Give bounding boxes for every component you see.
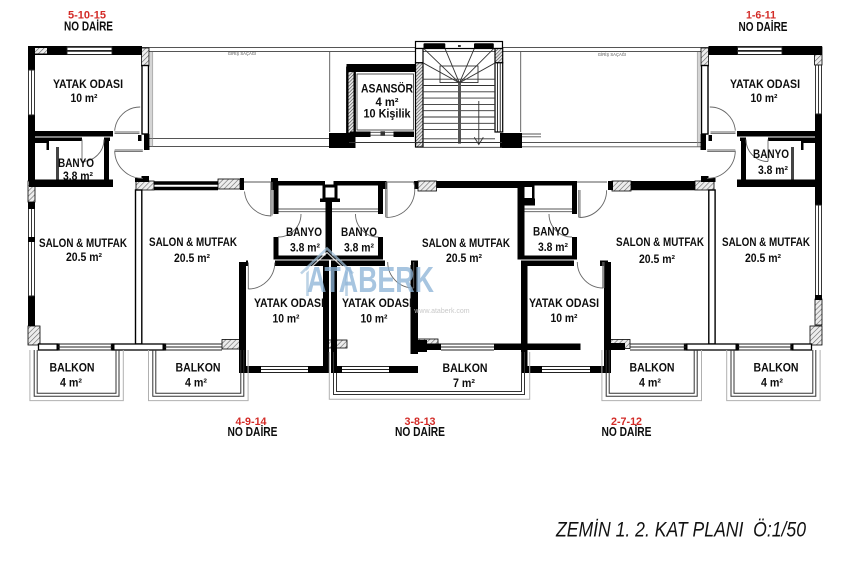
svg-text:20.5 m²: 20.5 m²	[639, 254, 675, 266]
svg-text:NO DAİRE: NO DAİRE	[395, 424, 445, 439]
svg-text:SALON & MUTFAK: SALON & MUTFAK	[422, 236, 510, 250]
svg-text:YATAK ODASI: YATAK ODASI	[529, 296, 599, 310]
svg-text:10 m²: 10 m²	[361, 314, 388, 326]
svg-text:20.5 m²: 20.5 m²	[174, 253, 210, 265]
svg-text:4 m²: 4 m²	[761, 378, 783, 390]
svg-text:YATAK ODASI: YATAK ODASI	[342, 296, 412, 310]
svg-text:3.8 m²: 3.8 m²	[63, 171, 93, 183]
svg-text:3.8 m²: 3.8 m²	[290, 243, 320, 255]
svg-text:10 m²: 10 m²	[273, 314, 300, 326]
svg-text:3.8 m²: 3.8 m²	[538, 242, 568, 254]
svg-text:4 m²: 4 m²	[60, 378, 82, 390]
svg-text:SALON & MUTFAK: SALON & MUTFAK	[149, 235, 237, 249]
svg-text:BANYO: BANYO	[286, 225, 322, 239]
svg-text:YATAK ODASI: YATAK ODASI	[254, 296, 324, 310]
svg-text:4 m²: 4 m²	[639, 378, 661, 390]
svg-text:SALON & MUTFAK: SALON & MUTFAK	[616, 235, 704, 249]
svg-text:10 m²: 10 m²	[71, 93, 98, 105]
svg-text:BALKON: BALKON	[630, 361, 675, 375]
svg-text:SALON & MUTFAK: SALON & MUTFAK	[39, 236, 127, 250]
svg-text:ASANSÖR: ASANSÖR	[361, 81, 413, 96]
svg-text:3.8 m²: 3.8 m²	[758, 165, 788, 177]
svg-text:20.5 m²: 20.5 m²	[446, 253, 482, 265]
svg-text:YATAK ODASI: YATAK ODASI	[53, 77, 123, 91]
svg-text:BALKON: BALKON	[754, 361, 799, 375]
svg-text:BANYO: BANYO	[341, 225, 377, 239]
svg-text:BANYO: BANYO	[58, 156, 94, 170]
svg-text:10 Kişilik: 10 Kişilik	[364, 107, 411, 121]
svg-text:SALON & MUTFAK: SALON & MUTFAK	[722, 235, 810, 249]
svg-text:7 m²: 7 m²	[453, 378, 475, 390]
svg-text:10 m²: 10 m²	[751, 93, 778, 105]
svg-text:3.8 m²: 3.8 m²	[344, 243, 374, 255]
svg-text:20.5 m²: 20.5 m²	[66, 252, 102, 264]
svg-text:ATABERK: ATABERK	[307, 259, 434, 300]
svg-text:10 m²: 10 m²	[551, 313, 578, 325]
svg-text:NO DAİRE: NO DAİRE	[739, 19, 788, 34]
svg-text:ZEMİN 1. 2. KAT PLANI Ö:1/50: ZEMİN 1. 2. KAT PLANI Ö:1/50	[555, 519, 806, 542]
svg-text:20.5 m²: 20.5 m²	[745, 253, 781, 265]
svg-text:NO DAİRE: NO DAİRE	[228, 424, 278, 439]
svg-text:NO DAİRE: NO DAİRE	[602, 424, 652, 439]
svg-text:NO DAİRE: NO DAİRE	[64, 18, 113, 33]
svg-text:GİRİŞ SAÇAĞI: GİRİŞ SAÇAĞI	[598, 52, 626, 57]
svg-text:YATAK ODASI: YATAK ODASI	[730, 77, 800, 91]
svg-text:BALKON: BALKON	[443, 361, 488, 375]
svg-text:BALKON: BALKON	[176, 361, 221, 375]
svg-text:BANYO: BANYO	[753, 147, 789, 161]
svg-text:GİRİŞ SAÇAĞI: GİRİŞ SAÇAĞI	[228, 51, 256, 56]
svg-text:BALKON: BALKON	[50, 361, 95, 375]
svg-text:www.ataberk.com: www.ataberk.com	[413, 308, 469, 315]
svg-text:BANYO: BANYO	[533, 225, 569, 239]
svg-text:4 m²: 4 m²	[185, 378, 207, 390]
